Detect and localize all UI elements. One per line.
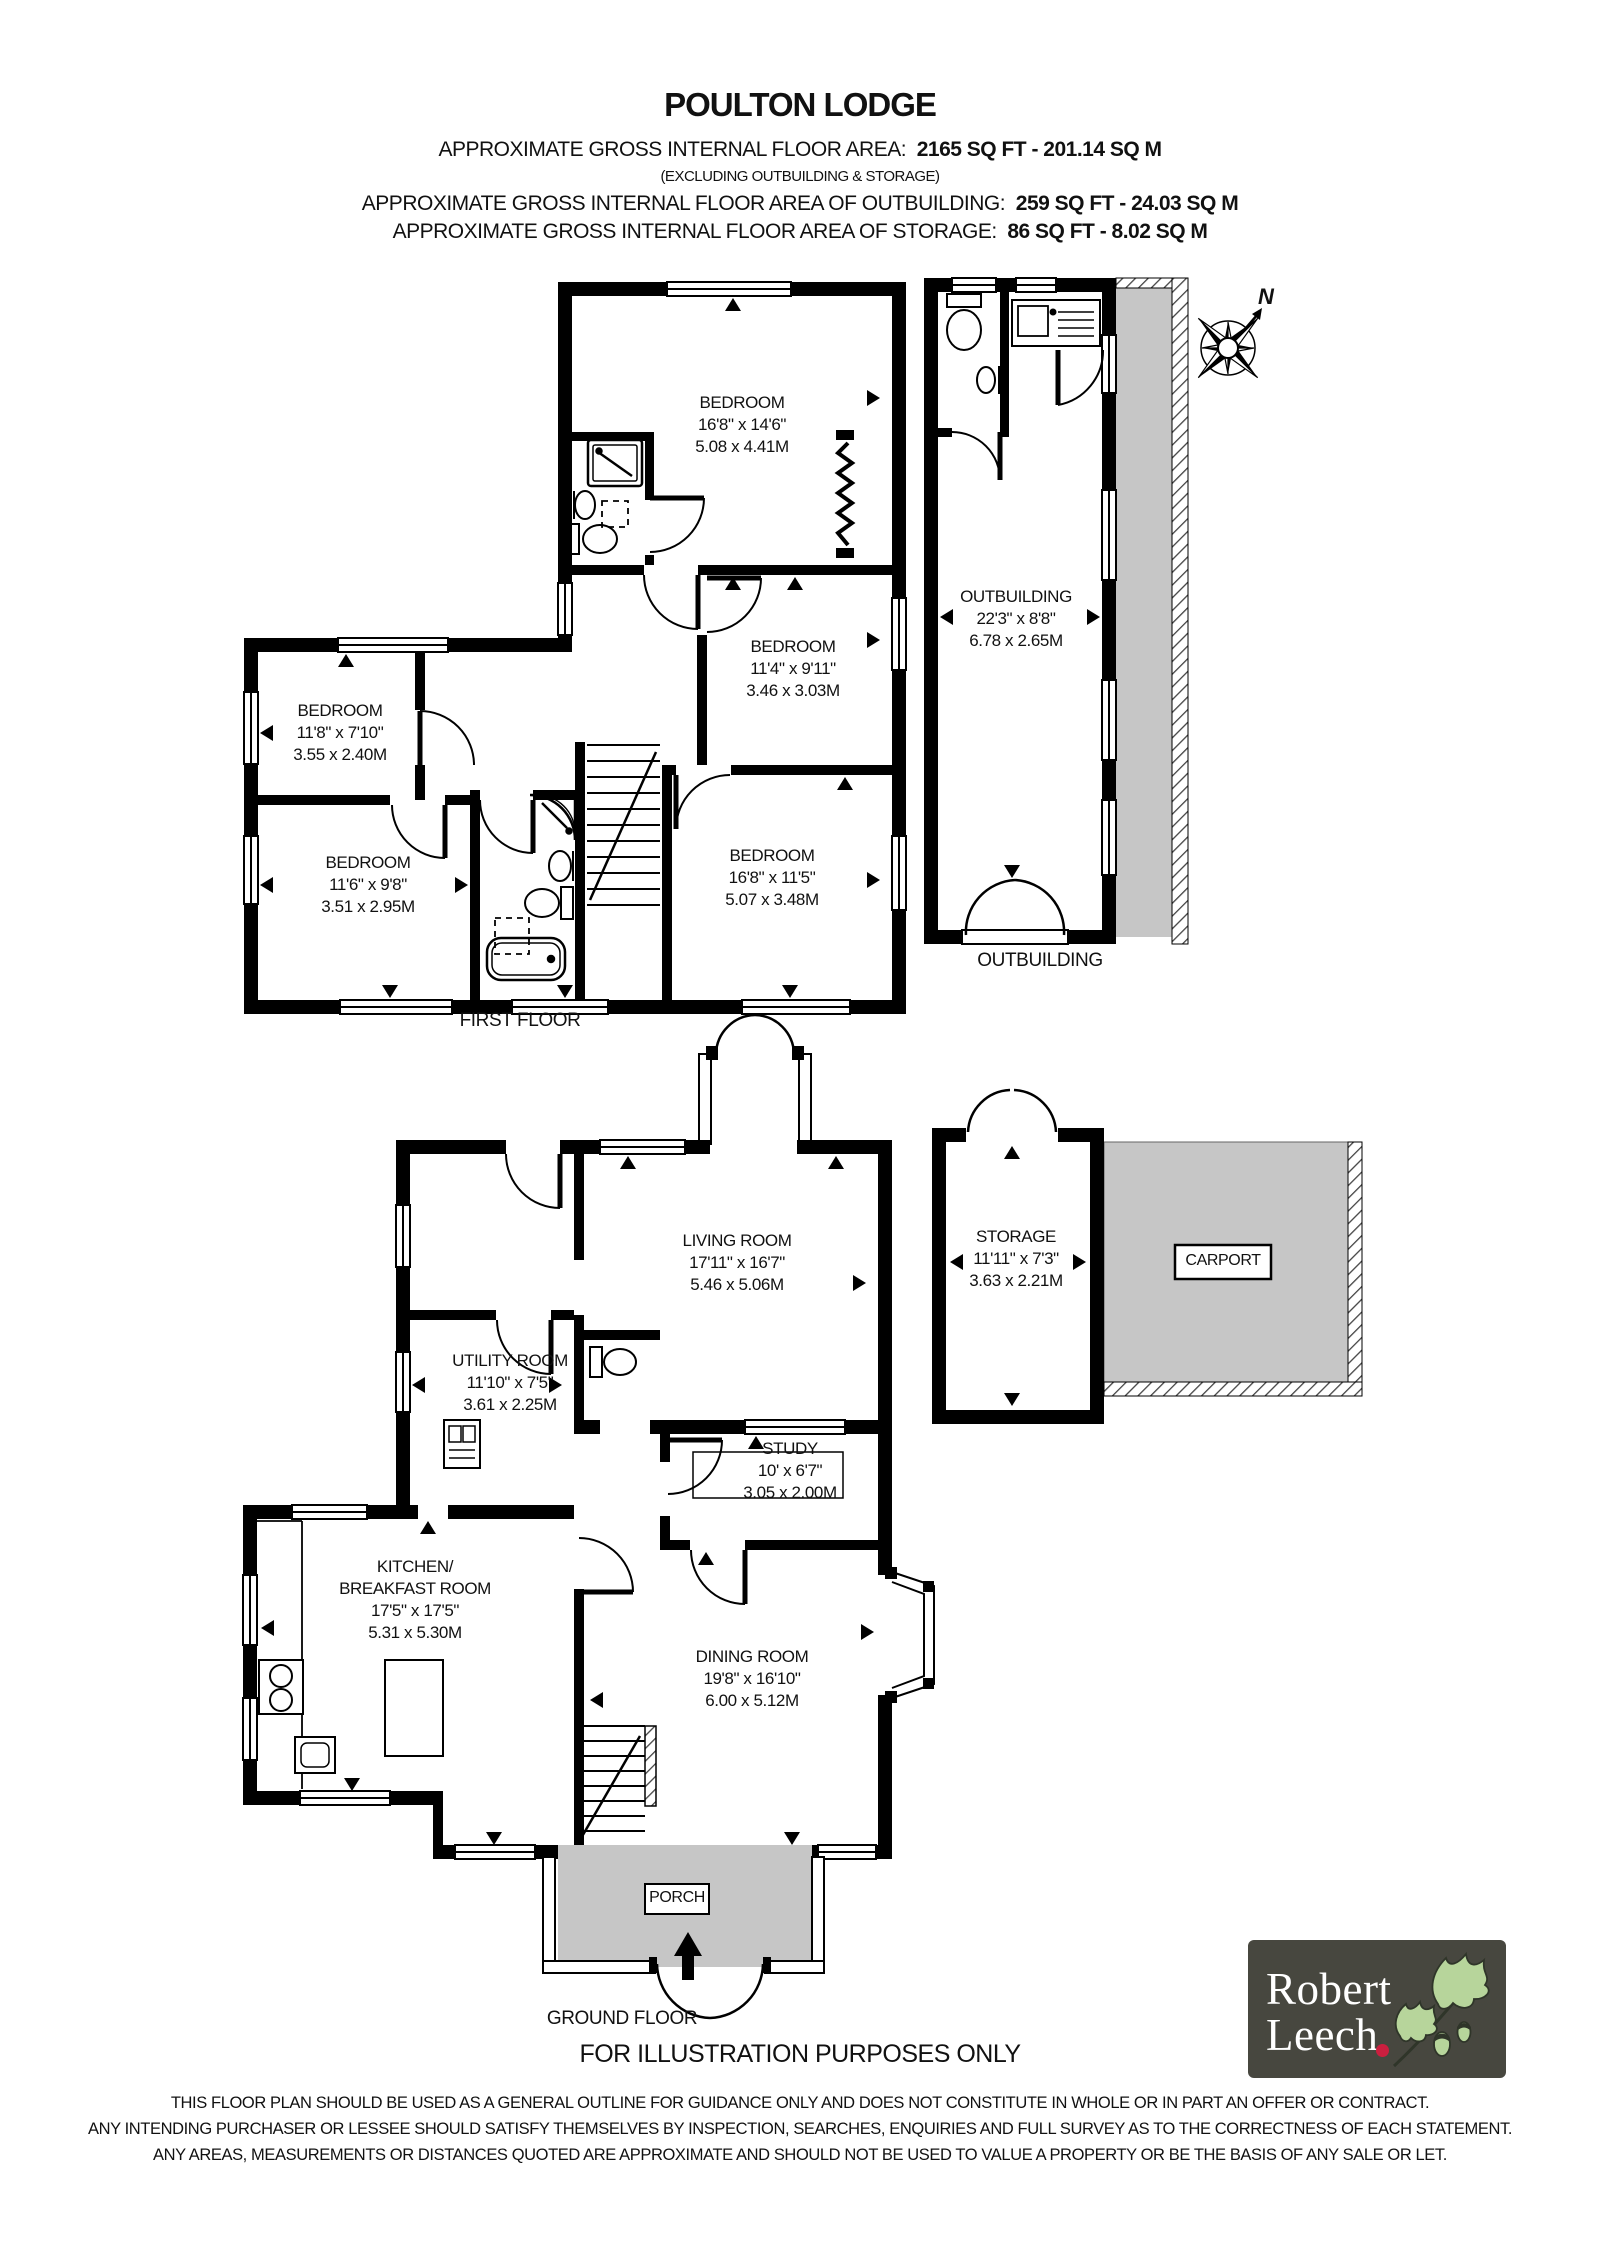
caption-outbuilding: OUTBUILDING	[977, 950, 1102, 972]
disclaimer-line-2: ANY INTENDING PURCHASER OR LESSEE SHOULD…	[0, 2120, 1600, 2139]
room-label-storage: STORAGE 11'11" x 7'3" 3.63 x 2.21M	[969, 1226, 1062, 1292]
outbuilding-area-label: APPROXIMATE GROSS INTERNAL FLOOR AREA OF…	[362, 192, 1005, 215]
outbuilding-area-line: APPROXIMATE GROSS INTERNAL FLOOR AREA OF…	[0, 192, 1600, 216]
outbuilding-area-value: 259 SQ FT - 24.03 SQ M	[1016, 192, 1238, 215]
outbuilding-paving	[1116, 278, 1188, 944]
wc-toilet-icon	[590, 1347, 636, 1377]
room-label-bedroom-1: BEDROOM 16'8" x 14'6" 5.08 x 4.41M	[695, 392, 788, 458]
room-label-outbuilding: OUTBUILDING 22'3" x 8'8" 6.78 x 2.65M	[960, 586, 1072, 652]
agency-name-line1: Robert	[1266, 1966, 1391, 2012]
bathroom-sink-icon	[549, 851, 573, 881]
caption-first-floor: FIRST FLOOR	[460, 1010, 581, 1032]
caption-illustration: FOR ILLUSTRATION PURPOSES ONLY	[579, 2040, 1020, 2069]
ensuite-sink-icon	[574, 491, 595, 519]
compass-north-pointer	[1246, 308, 1262, 328]
room-label-bedroom-2: BEDROOM 11'4" x 9'11" 3.46 x 3.03M	[746, 636, 839, 702]
caption-carport: CARPORT	[1185, 1252, 1260, 1270]
gross-area-line: APPROXIMATE GROSS INTERNAL FLOOR AREA: 2…	[0, 138, 1600, 162]
outbuilding-wc-toilet-icon	[947, 294, 981, 350]
bay-window	[886, 1568, 934, 1702]
ground-floor-stairs-icon	[578, 1726, 656, 1840]
room-label-bedroom-5: BEDROOM 16'8" x 11'5" 5.07 x 3.48M	[725, 845, 818, 911]
bathroom-toilet-icon	[525, 887, 573, 919]
room-label-dining-room: DINING ROOM 19'8" x 16'10" 6.00 x 5.12M	[696, 1646, 809, 1712]
agency-name-line2: Leech	[1266, 2012, 1378, 2058]
room-label-living-room: LIVING ROOM 17'11" x 16'7" 5.46 x 5.06M	[683, 1230, 792, 1296]
disclaimer-line-1: THIS FLOOR PLAN SHOULD BE USED AS A GENE…	[0, 2094, 1600, 2113]
compass-north-label: N	[1258, 284, 1274, 310]
first-floor-stairs-icon	[587, 745, 660, 905]
room-label-utility-room: UTILITY ROOM 11'10" x 7'5" 3.61 x 2.25M	[452, 1350, 568, 1416]
room-label-kitchen: KITCHEN/ BREAKFAST ROOM 17'5" x 17'5" 5.…	[339, 1556, 491, 1644]
storage-area-label: APPROXIMATE GROSS INTERNAL FLOOR AREA OF…	[393, 220, 997, 243]
utility-sink-icon	[444, 1420, 480, 1468]
porch-area	[543, 1845, 824, 2018]
gross-area-value: 2165 SQ FT - 201.14 SQ M	[917, 138, 1162, 161]
ensuite-toilet-icon	[567, 524, 617, 554]
outbuilding-wc-sink-icon	[977, 366, 999, 394]
room-label-bedroom-3: BEDROOM 11'8" x 7'10" 3.55 x 2.40M	[293, 700, 386, 766]
gross-area-note: (EXCLUDING OUTBUILDING & STORAGE)	[0, 168, 1600, 185]
floor-plan-drawing	[0, 0, 1600, 2262]
compass-rose-icon	[1193, 313, 1262, 382]
hob-icon	[259, 1660, 303, 1714]
storage-area-value: 86 SQ FT - 8.02 SQ M	[1007, 220, 1207, 243]
bathroom-shower-icon	[530, 795, 575, 840]
disclaimer-line-3: ANY AREAS, MEASUREMENTS OR DISTANCES QUO…	[0, 2146, 1600, 2165]
storage-area-line: APPROXIMATE GROSS INTERNAL FLOOR AREA OF…	[0, 220, 1600, 244]
folding-partition-zigzag	[838, 443, 852, 545]
outbuilding-sink-unit-icon	[1012, 300, 1100, 346]
room-label-study: STUDY 10' x 6'7" 3.05 x 2.00M	[743, 1438, 836, 1504]
gross-area-label: APPROXIMATE GROSS INTERNAL FLOOR AREA:	[438, 138, 906, 161]
page-title: POULTON LODGE	[0, 86, 1600, 124]
room-label-bedroom-4: BEDROOM 11'6" x 9'8" 3.51 x 2.95M	[321, 852, 414, 918]
ensuite-cupboard-dashed	[602, 501, 628, 527]
storage-doors	[968, 1090, 1056, 1132]
oak-leaf-icon	[1380, 1944, 1502, 2074]
agency-logo: Robert Leech	[1248, 1940, 1506, 2078]
ensuite-shower-icon	[588, 440, 642, 486]
caption-ground-floor: GROUND FLOOR	[547, 2008, 697, 2030]
caption-porch: PORCH	[649, 1889, 705, 1907]
floorplan-page: POULTON LODGE APPROXIMATE GROSS INTERNAL…	[0, 0, 1600, 2262]
bathroom-cupboard-dashed	[495, 918, 529, 954]
oven-icon	[295, 1737, 335, 1773]
entrance-vestibule	[699, 1015, 811, 1144]
bath-icon	[487, 938, 565, 980]
kitchen-island	[385, 1660, 443, 1756]
